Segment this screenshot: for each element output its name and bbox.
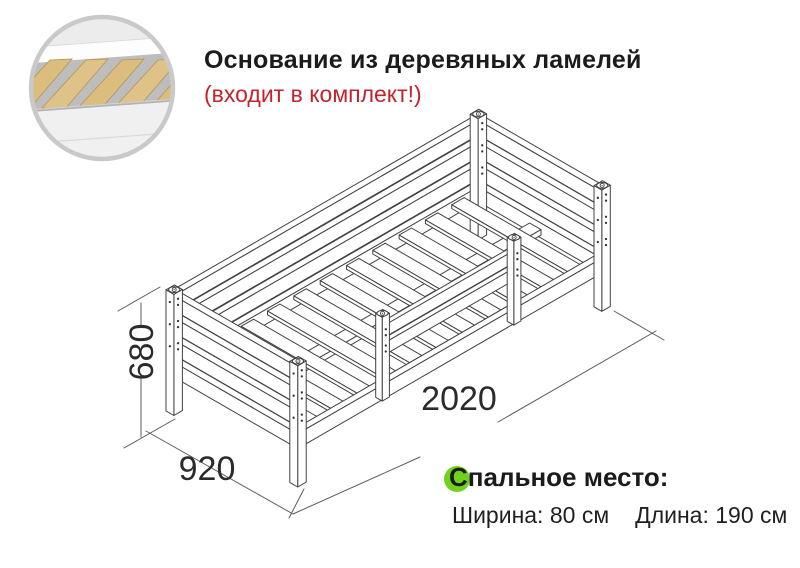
extension-line-front-corner xyxy=(289,489,304,518)
bed-infographic: { "header": { "title": "Основание из дер… xyxy=(0,0,800,568)
wooden-slats-image xyxy=(20,6,184,170)
dimension-line-length-right xyxy=(498,331,656,422)
dimension-length-label: 2020 xyxy=(421,380,497,418)
sleeping-area-heading: Спальное место: xyxy=(449,462,774,493)
sleeping-length-spec: Длина: 190 см xyxy=(635,502,787,528)
inset-title: Основание из деревяных ламелей xyxy=(204,46,642,75)
sleeping-area-block: Спальное место: Ширина: 80 смДлина: 190 … xyxy=(444,462,774,529)
inset-note: (входит в комплект!) xyxy=(204,81,422,108)
dimension-depth-label: 920 xyxy=(179,450,236,488)
dimension-height-label: 680 xyxy=(123,324,161,381)
extension-line-height-top xyxy=(118,287,160,311)
slats-photo-inset xyxy=(20,6,184,170)
sleeping-area-specs: Ширина: 80 смДлина: 190 см xyxy=(452,502,774,529)
bed-line-art xyxy=(166,109,610,487)
sleeping-width-spec: Ширина: 80 см xyxy=(452,502,609,528)
dimension-line-length-left xyxy=(293,457,420,514)
extension-line-head-corner xyxy=(614,311,664,340)
